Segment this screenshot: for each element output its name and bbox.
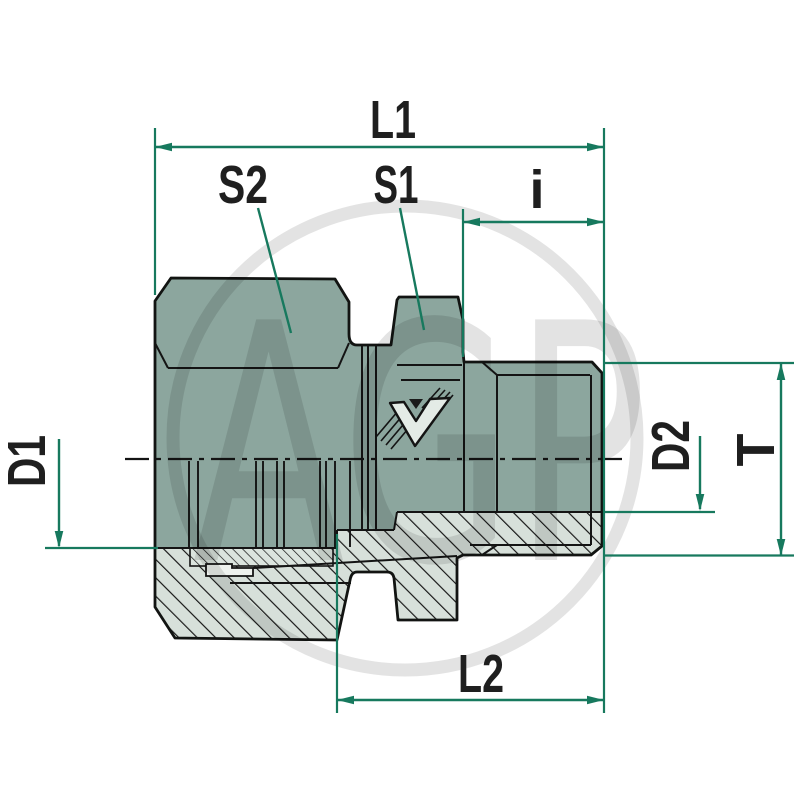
label-l1: L1: [370, 90, 416, 150]
label-d1: D1: [0, 435, 57, 487]
arrow-l1-right: [587, 143, 604, 152]
label-i: i: [529, 160, 544, 220]
arrow-t-up: [777, 363, 786, 380]
fitting-diagram: AGP: [0, 0, 800, 800]
arrow-l2-right: [587, 696, 604, 705]
label-d2: D2: [641, 420, 701, 472]
label-s1: S1: [374, 155, 419, 215]
watermark: AGP: [173, 206, 648, 670]
label-l2: L2: [458, 644, 504, 704]
arrow-l1-left: [155, 143, 172, 152]
arrow-t-down: [777, 539, 786, 556]
arrow-d2-down: [696, 494, 705, 511]
drawing-canvas: AGP: [0, 0, 800, 800]
label-t: T: [726, 434, 786, 467]
arrow-i-right: [587, 218, 604, 227]
arrow-d1-down: [55, 531, 64, 548]
arrow-l2-left: [337, 696, 354, 705]
label-s2: S2: [218, 155, 268, 215]
